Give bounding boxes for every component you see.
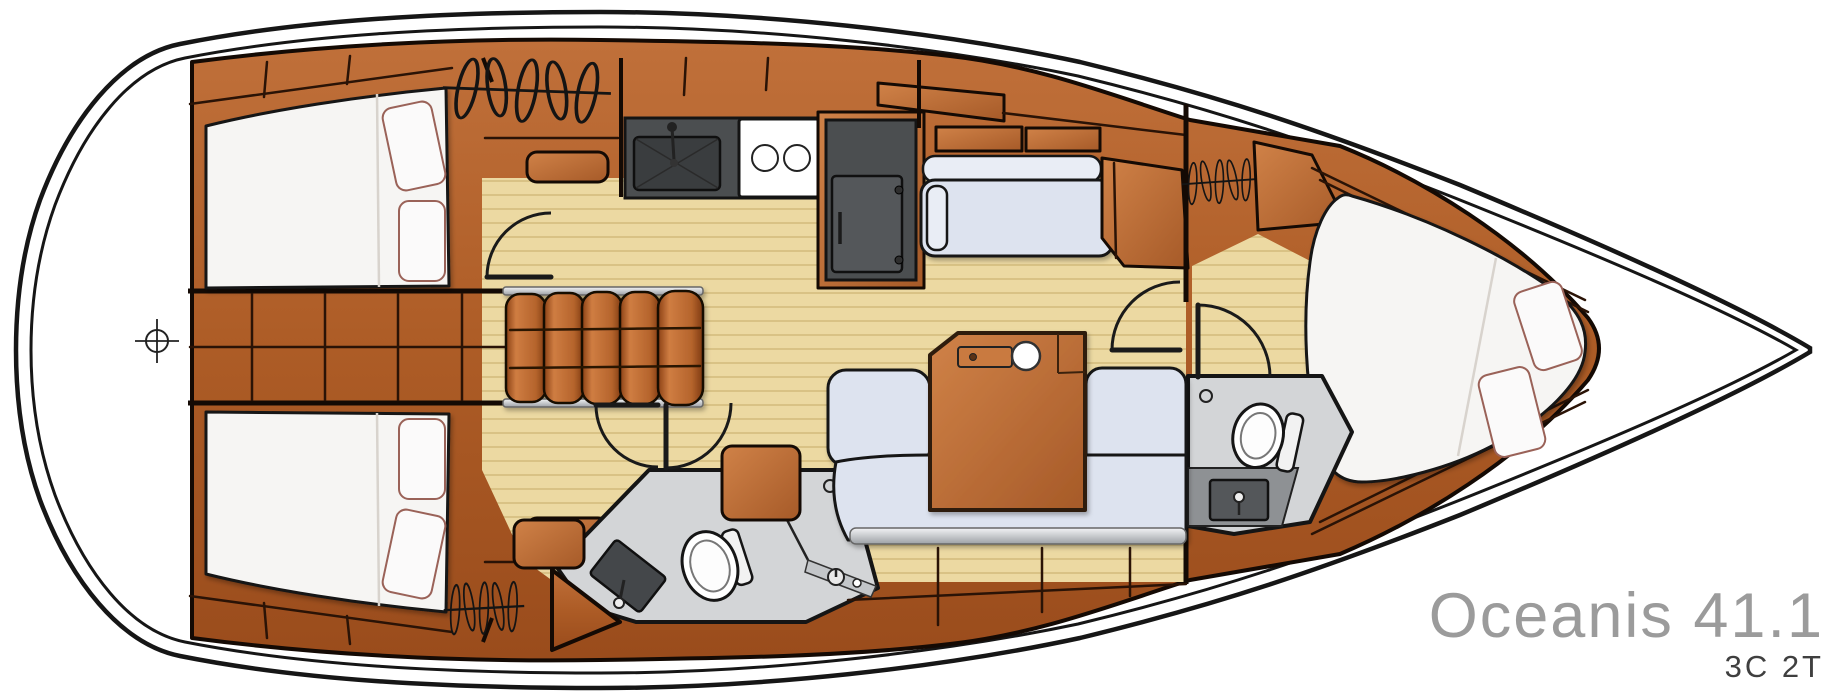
layout-code: 3C 2T — [1725, 649, 1824, 684]
pillow — [399, 419, 445, 499]
bench-trim — [850, 528, 1186, 544]
yacht-floor-plan: Oceanis 41.1 3C 2T — [0, 0, 1832, 700]
locker-door — [936, 127, 1022, 151]
table-drawer — [958, 347, 1012, 367]
saloon-table — [930, 333, 1085, 510]
stair-steps — [506, 291, 703, 405]
cabin-seat — [527, 152, 608, 182]
settee-back-cushion — [828, 370, 930, 466]
settee-backrest — [923, 156, 1101, 182]
model-title: Oceanis 41.1 — [1429, 581, 1824, 651]
cupholder-icon — [1012, 342, 1040, 370]
pillow — [399, 201, 445, 281]
companionway-stairs — [503, 287, 703, 407]
side-seat — [722, 446, 800, 520]
settee-berth — [921, 180, 1113, 256]
starboard-settee — [921, 156, 1113, 256]
chart-table — [1102, 158, 1188, 268]
fridge-icon — [818, 112, 924, 288]
lumbar-pillow — [927, 186, 947, 250]
head-locker — [514, 520, 584, 568]
floor-plan-page: Oceanis 41.1 3C 2T — [0, 0, 1832, 700]
locker-door — [1026, 128, 1100, 151]
